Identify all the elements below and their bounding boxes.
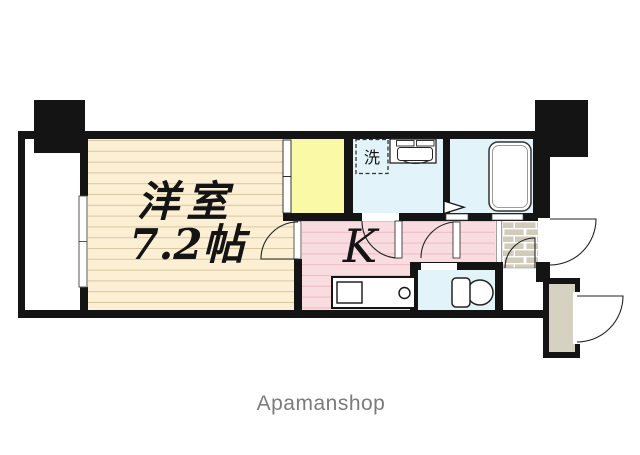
pillar-top-left: [34, 100, 85, 153]
wall-room-left-lower: [80, 287, 88, 310]
wall-top: [80, 131, 550, 139]
entrance-hall: [503, 268, 538, 310]
wall-closet-washroom: [344, 139, 353, 213]
bathroom-door-sill: [446, 214, 468, 220]
watermark-text: Apamanshop: [257, 392, 386, 415]
room-door-opening: [294, 221, 301, 259]
floorplan-page: 洋室 7.2帖 K 洗 Apamanshop: [0, 0, 640, 455]
closet: [291, 139, 344, 213]
toilet-door-leaf: [453, 222, 460, 258]
burner: [399, 288, 410, 299]
wall-top-stub: [18, 131, 34, 139]
wall-toilet-right: [495, 262, 503, 310]
wall-bottom: [18, 310, 543, 318]
bathtub: [489, 142, 531, 211]
closet-door-panel-2: [283, 177, 291, 214]
wall-room-kitchen: [294, 259, 302, 310]
laundry-label: 洗: [364, 148, 380, 167]
wall-left-outer: [18, 131, 25, 318]
toilet-bowl: [467, 280, 493, 305]
room-name-label: 洋室: [137, 177, 235, 226]
kitchen-label: K: [342, 219, 380, 273]
toilet-door-opening: [421, 263, 457, 270]
room-size-label: 7.2帖: [129, 220, 250, 269]
washroom-door-leaf: [395, 221, 402, 258]
kitchen-sink: [337, 282, 362, 303]
pillar-top-right: [535, 100, 588, 157]
storage-interior: [549, 284, 575, 352]
balcony: [25, 139, 80, 310]
entrance-door-swing: [550, 219, 596, 265]
toilet-tank: [452, 278, 470, 307]
floor-plan: 洋室 7.2帖 K 洗 Apamanshop: [0, 0, 640, 455]
closet-door-panel-1: [283, 140, 291, 177]
entrance-door-opening: [538, 218, 550, 262]
vanity-basin: [398, 148, 433, 161]
storage-door-swing: [577, 296, 623, 342]
entrance-sill: [492, 214, 523, 220]
entrance-tile-floor: [503, 221, 538, 268]
storage-door-opening: [573, 292, 580, 344]
